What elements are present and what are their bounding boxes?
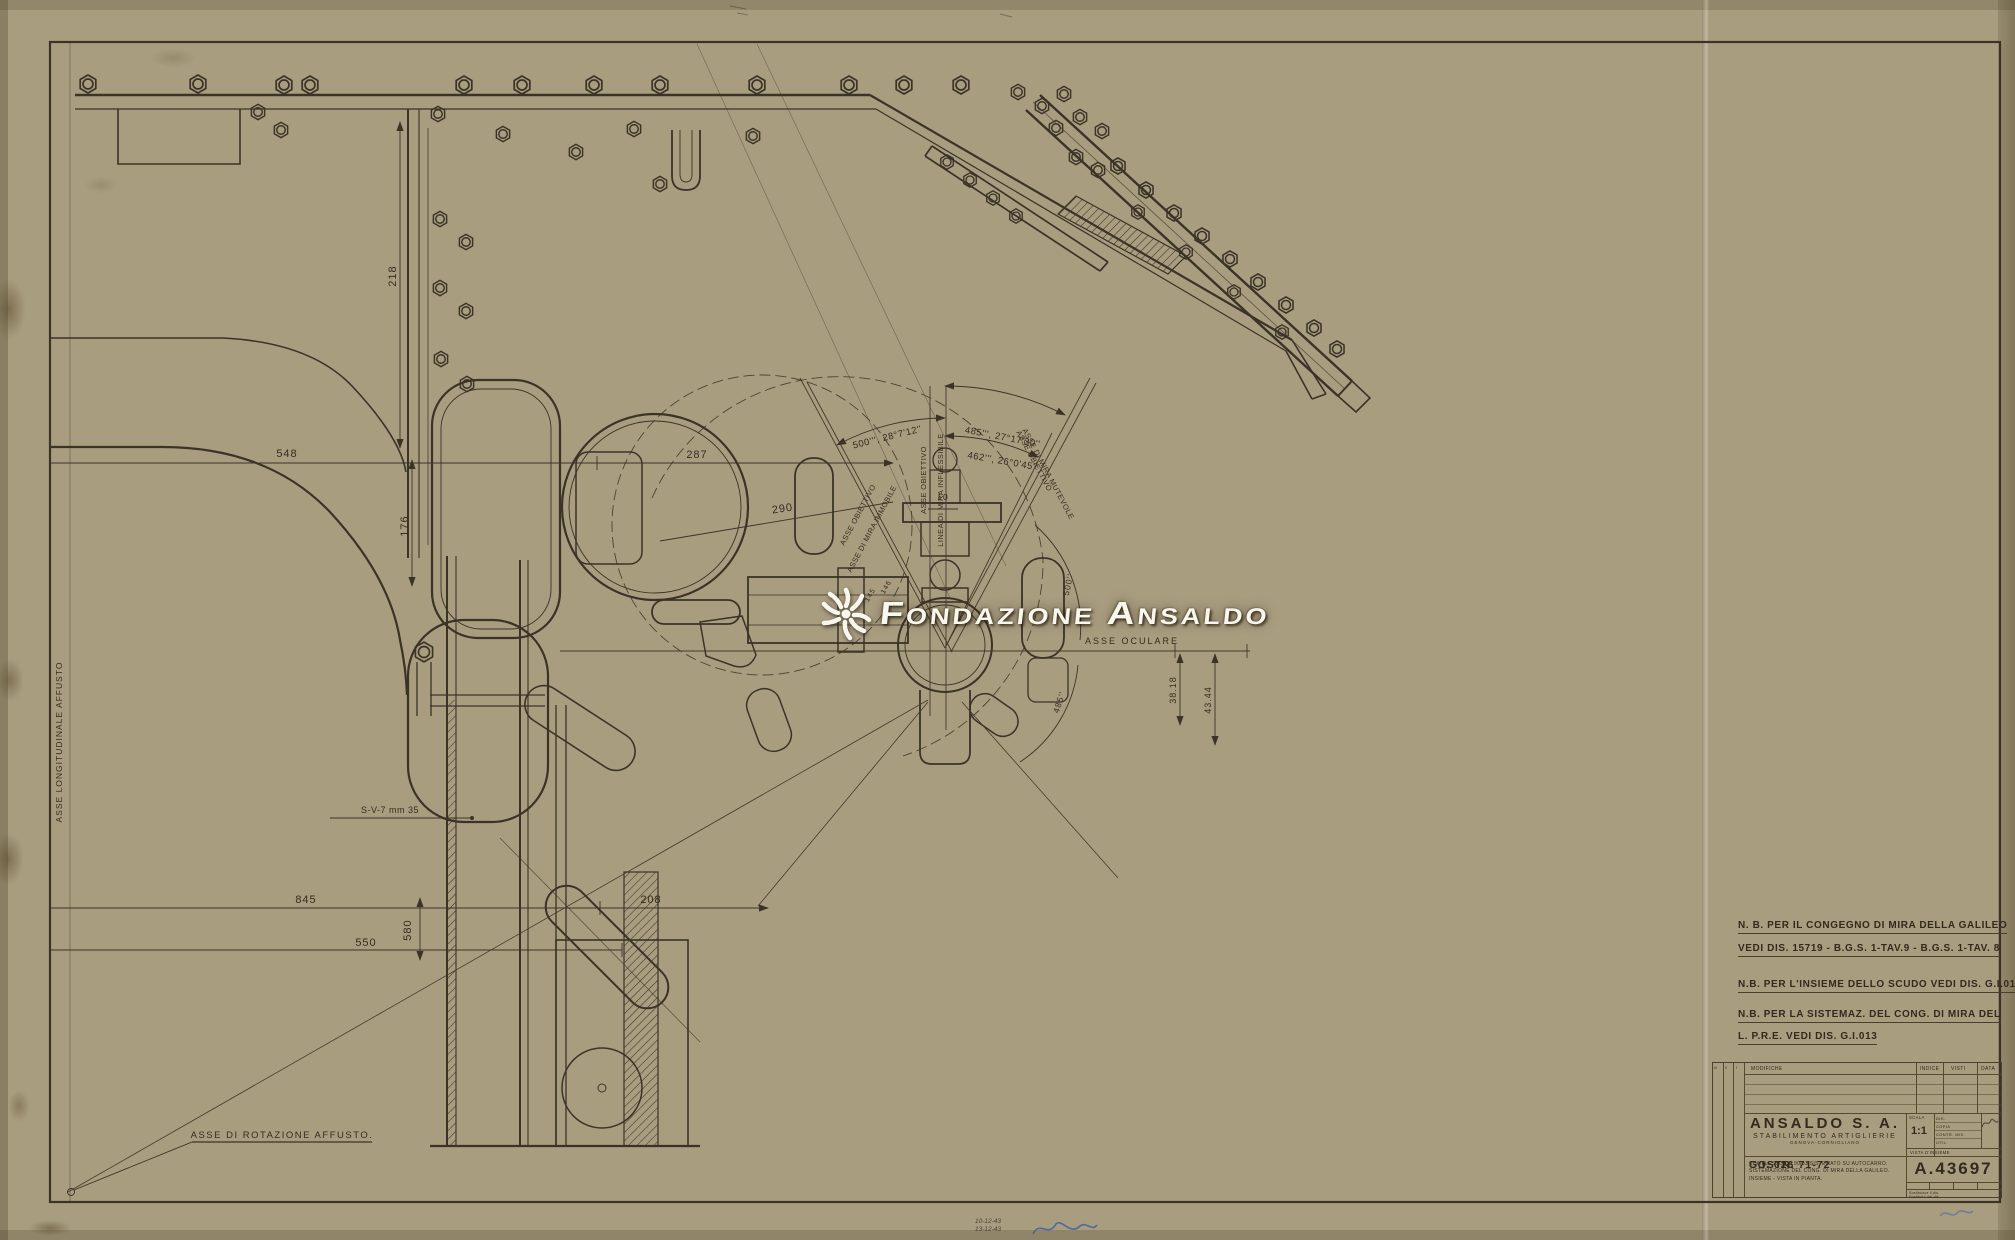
note-line: L. P.R.E. VEDI DIS. G.I.013 [1738, 1031, 1877, 1045]
indice-header: INDICE [1920, 1066, 1939, 1072]
drawing-number: A.43697 [1906, 1159, 2001, 1179]
dim-label: 218 [387, 265, 399, 286]
scale-row-label: UTIL. [1936, 1140, 1948, 1145]
mod-col-label: II [1725, 1066, 1727, 1070]
pedestal-linework [415, 556, 700, 1146]
dim-label: 10 [937, 492, 948, 502]
data-header: DATA [1981, 1066, 1995, 1072]
axis-label: ASSE DI ROTAZIONE AFFUSTO. [191, 1130, 374, 1141]
gi-number: G.I. 026 [1749, 1159, 1794, 1171]
axis-label: ASSE OCULARE [1085, 636, 1179, 646]
dim-label: 43.44 [1203, 686, 1213, 714]
title-block-rule [1977, 1182, 1978, 1189]
mod-col-label: I [1736, 1066, 1737, 1070]
title-block-rule [1916, 1063, 1917, 1113]
dim-label: 208 [640, 894, 661, 906]
company-block: ANSALDO S. A. STABILIMENTO ARTIGLIERIE G… [1744, 1115, 1906, 1145]
vista-label: VISTA D'INSIEME [1910, 1150, 1950, 1155]
handwritten-date: 13-12-43 [975, 1226, 1001, 1234]
signature-mark [1980, 1115, 2000, 1131]
title-block-rule [1744, 1094, 2001, 1095]
title-block-rule [1744, 1156, 2001, 1157]
title-block-rule [1934, 1138, 1981, 1139]
company-name: ANSALDO S. A. [1744, 1115, 1906, 1132]
scale-row-label: DIS. [1936, 1116, 1945, 1121]
notes-block: N. B. PER IL CONGEGNO DI MIRA DELLA GALI… [1738, 920, 2015, 1045]
note-line: N.B. PER LA SISTEMAZ. DEL CONG. DI MIRA … [1738, 1009, 2001, 1023]
note-line: VEDI DIS. 15719 - B.G.S. 1-TAV.9 - B.G.S… [1738, 943, 2000, 957]
title-block-rule [1943, 1063, 1944, 1113]
scale-row-label: COPIA [1936, 1124, 1950, 1129]
sight-mechanism [408, 375, 1068, 822]
note-line: N. B. PER IL CONGEGNO DI MIRA DELLA GALI… [1738, 920, 2007, 934]
company-city: GENOVA-CORNIGLIANO [1744, 1140, 1906, 1145]
handwritten-date: 10-12-43 [975, 1218, 1001, 1226]
axis-label: LINEA DI MIRA INFLESSIBILE [936, 433, 945, 546]
dim-label: 580 [402, 919, 414, 940]
title-block-rule [1953, 1182, 1954, 1189]
scale-row-label: CONTR. MIS. [1936, 1132, 1965, 1137]
dim-label: 287 [686, 449, 707, 461]
dim-label: 176 [399, 515, 411, 536]
scala-label: SCALA [1909, 1115, 1925, 1120]
handwritten-dates: 10-12-43 13-12-43 [975, 1218, 1001, 1234]
dim-label: 38.18 [1168, 676, 1178, 704]
title-block-rule [1906, 1148, 2001, 1149]
axis-label: ASSE OBIETTIVO [919, 446, 928, 514]
drawing-description: COSTR. 71-72 G.I. 026 COMPLESSO DA 90/53… [1749, 1159, 1904, 1182]
title-block-rule [1744, 1074, 2001, 1075]
dim-label: 845 [295, 894, 316, 906]
technical-drawing: 548 287 290 218 176 845 550 580 208 S-V-… [0, 0, 2015, 1240]
part-label: S-V-7 mm 35 [361, 805, 419, 815]
title-block-rule [1977, 1063, 1978, 1113]
title-block-rule [1929, 1182, 1930, 1189]
shield-linework [50, 95, 1370, 695]
title-block-rule [1744, 1113, 2001, 1114]
dim-label: 290 [771, 501, 794, 516]
dim-label: 550 [355, 937, 376, 949]
mod-col-label: III [1714, 1066, 1718, 1070]
dim-label: 146 [880, 579, 893, 595]
company-division: STABILIMENTO ARTIGLIERIE [1744, 1133, 1906, 1140]
title-block-rule [1744, 1084, 2001, 1085]
description-line: INSIEME - VISTA IN PIANTA. [1749, 1176, 1904, 1182]
title-block-rule [1906, 1113, 1907, 1197]
visti-header: VISTI [1951, 1066, 1966, 1072]
title-block-rule [1934, 1130, 1981, 1131]
title-block: III II I MODIFICHE INDICE VISTI DATA ANS… [1712, 1062, 2002, 1198]
modifiche-header: MODIFICHE [1751, 1066, 1783, 1072]
axis-label: ASSE LONGITUDINALE AFFUSTO [54, 662, 64, 823]
scala-value: 1:1 [1911, 1125, 1927, 1137]
angle-label: 500''', 28°7'12'' [852, 424, 923, 452]
title-block-rule [1934, 1122, 1981, 1123]
sostituito-label: Sostituito dal dis. [1909, 1195, 1940, 1199]
note-line: N.B. PER L'INSIEME DELLO SCUDO VEDI DIS.… [1738, 979, 2015, 993]
title-block-rule [1733, 1063, 1734, 1197]
title-block-rule [1744, 1104, 2001, 1105]
signature-blue [1033, 1211, 1973, 1234]
dim-label: 548 [276, 448, 297, 460]
title-block-rule [1723, 1063, 1724, 1197]
blueprint-sheet: 548 287 290 218 176 845 550 580 208 S-V-… [0, 0, 2015, 1240]
